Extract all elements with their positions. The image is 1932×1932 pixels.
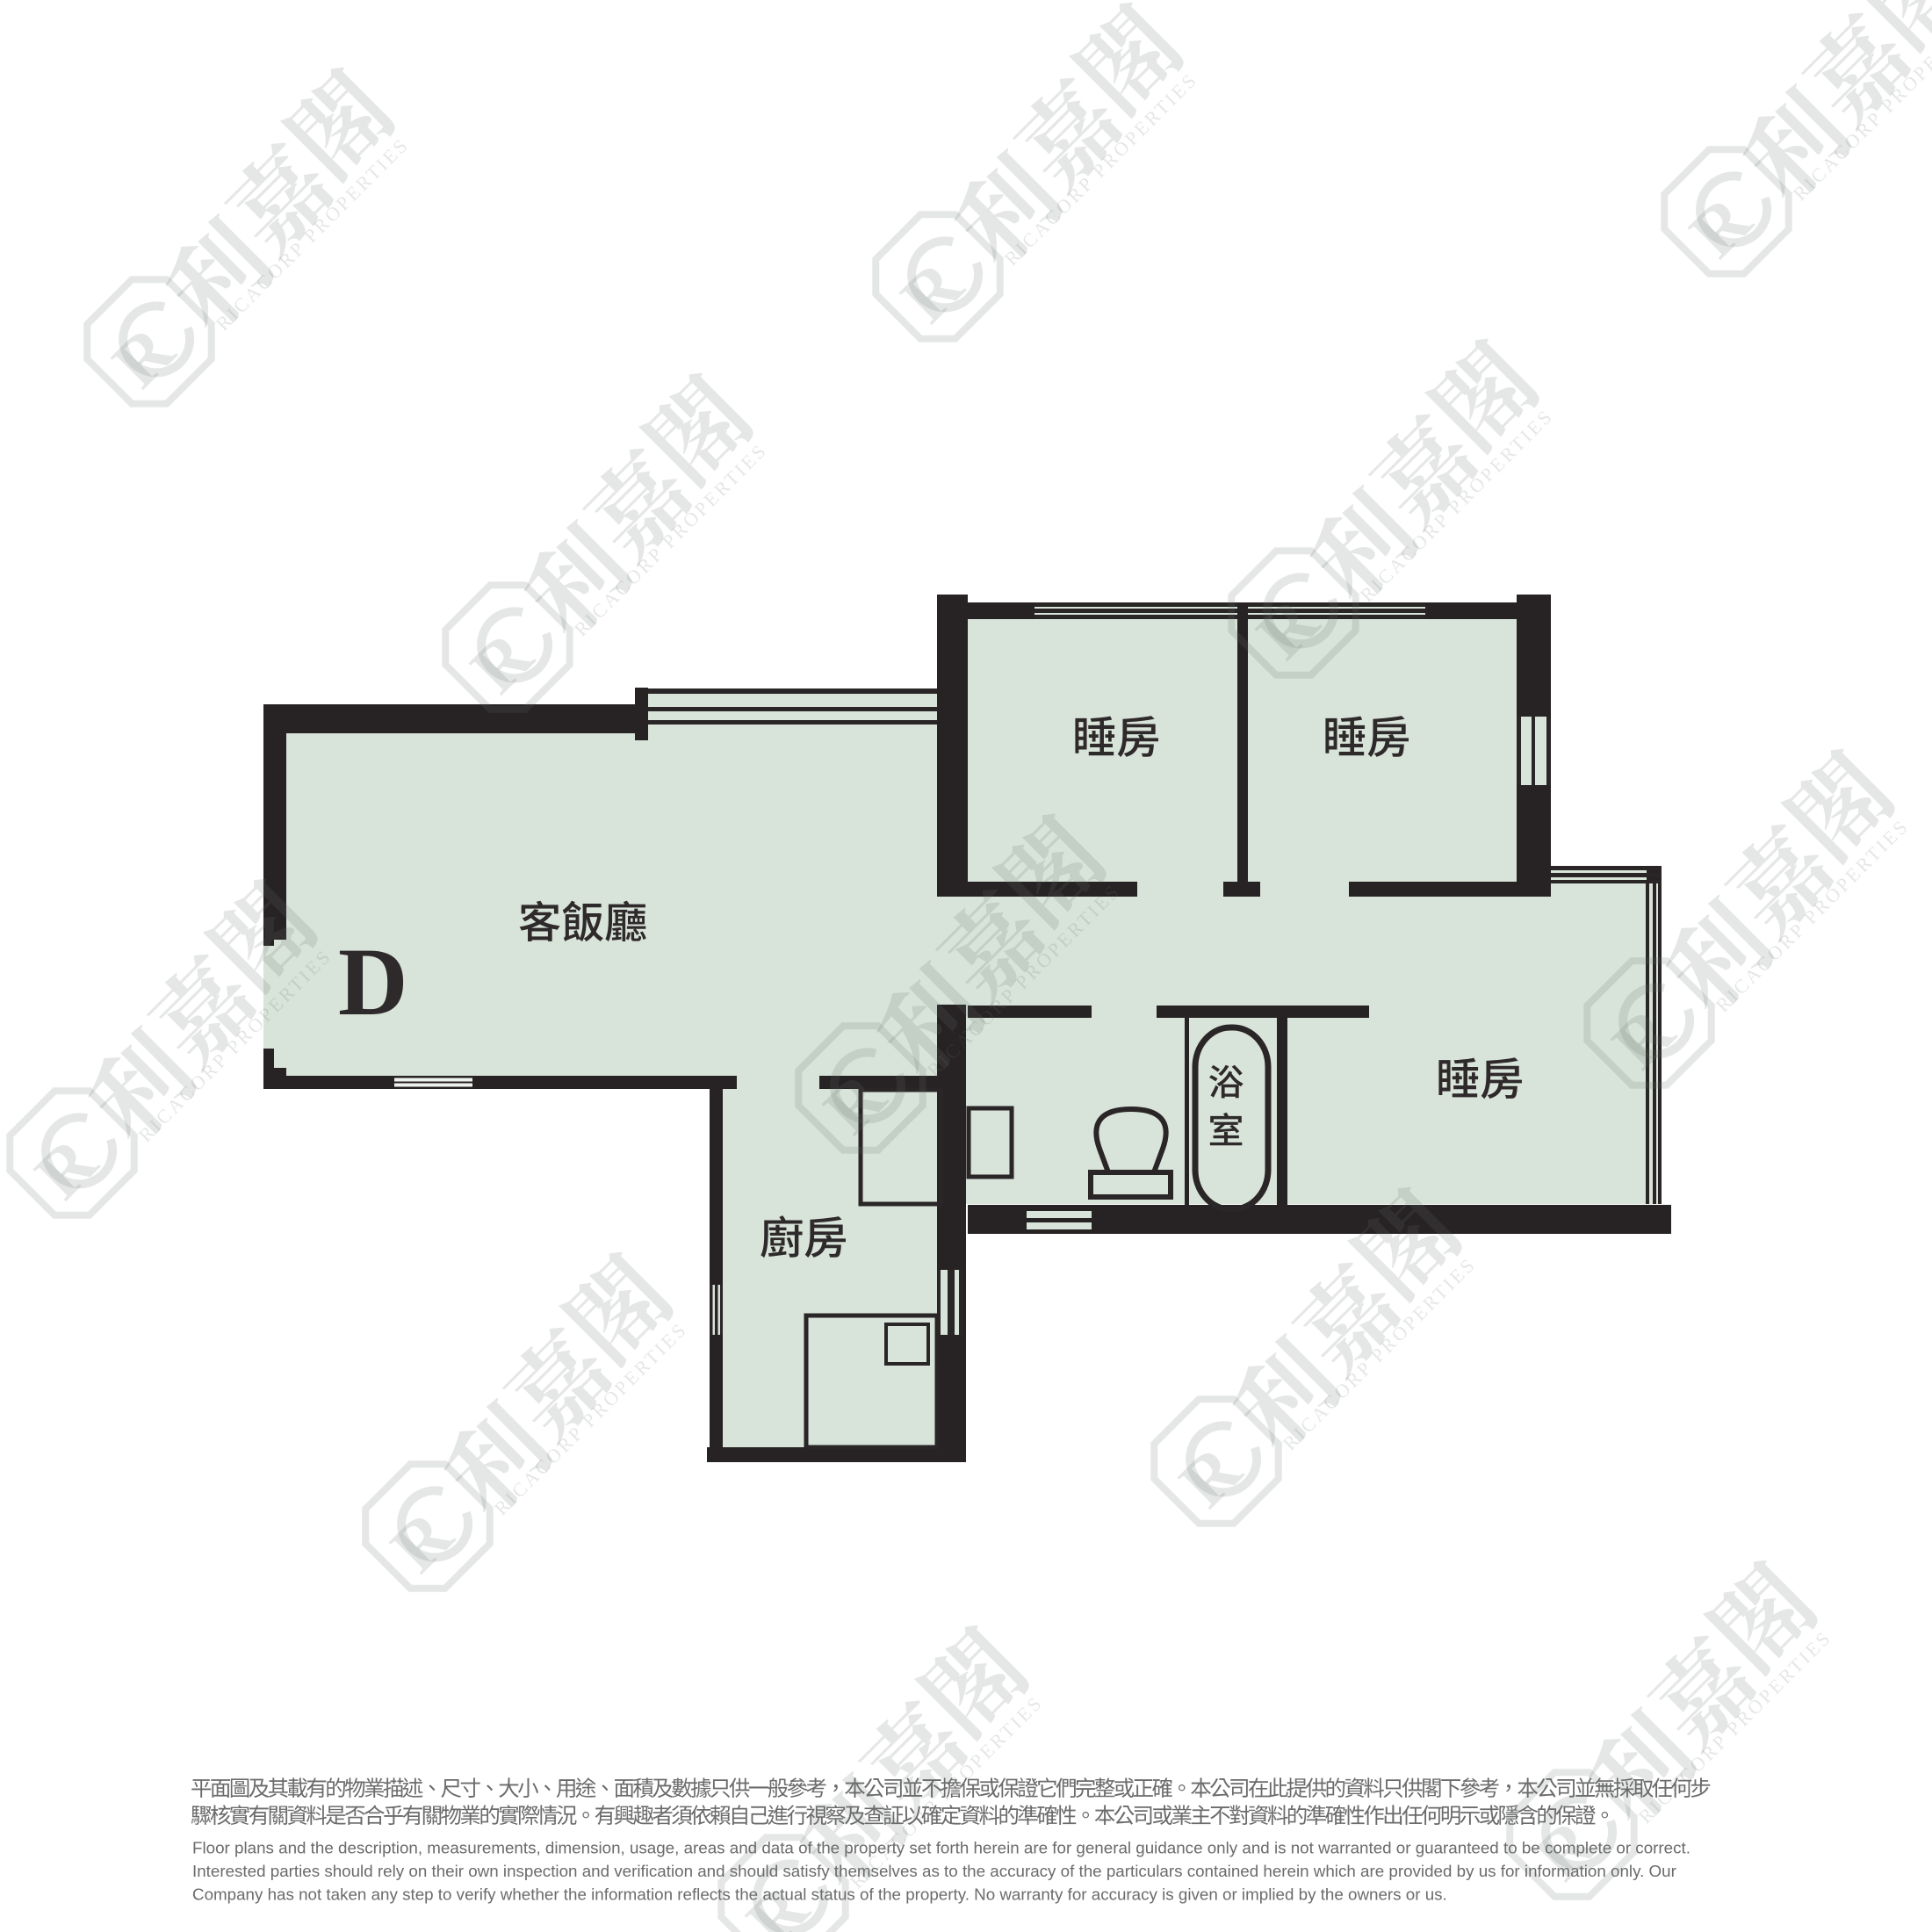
svg-text:D: D — [338, 928, 407, 1035]
svg-text:Floor plans and the descriptio: Floor plans and the description, measure… — [192, 1839, 1690, 1857]
svg-text:Interested parties should rely: Interested parties should rely on their … — [192, 1862, 1676, 1880]
